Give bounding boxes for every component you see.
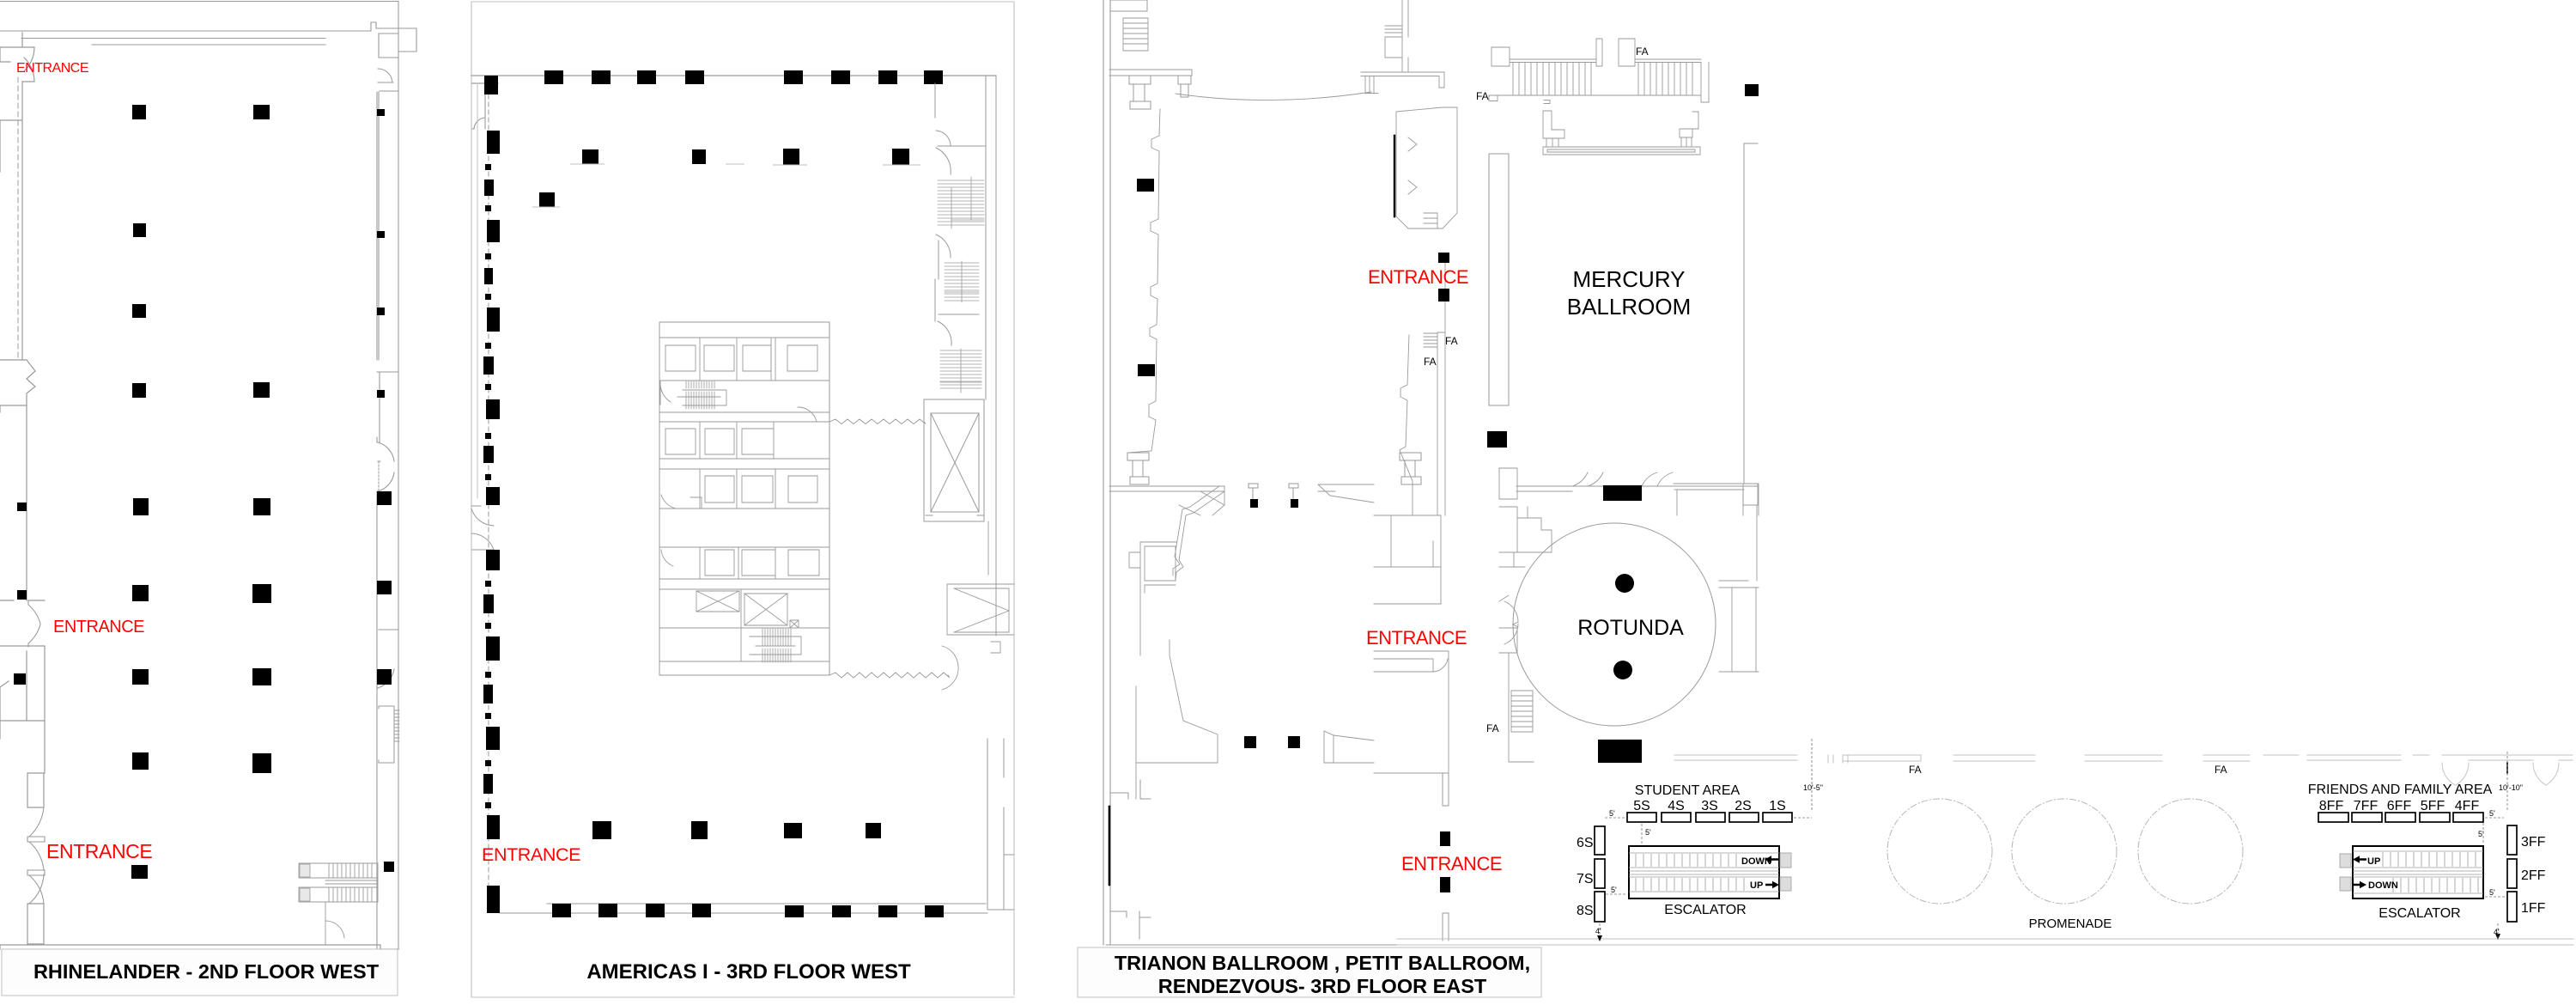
svg-text:5': 5' [1645,828,1651,837]
svg-text:4FF: 4FF [2455,799,2480,813]
svg-text:1S: 1S [1769,799,1786,813]
svg-text:4': 4' [2494,928,2500,936]
svg-text:DOWN: DOWN [1741,856,1771,867]
svg-text:ENTRANCE: ENTRANCE [482,844,580,865]
svg-text:STUDENT AREA: STUDENT AREA [1635,783,1741,798]
svg-text:UP: UP [1750,880,1763,891]
svg-text:8FF: 8FF [2319,799,2344,813]
svg-text:10'-5": 10'-5" [1803,783,1823,792]
svg-text:ENTRANCE: ENTRANCE [1366,627,1467,649]
svg-text:5': 5' [1611,886,1617,894]
svg-text:2FF: 2FF [2521,868,2546,883]
svg-text:5': 5' [2489,888,2495,897]
svg-text:FA: FA [1424,356,1437,368]
svg-text:8S: 8S [1577,904,1594,918]
svg-text:ENTRANCE: ENTRANCE [1401,853,1502,874]
svg-text:1FF: 1FF [2521,901,2546,916]
svg-text:7S: 7S [1577,872,1594,886]
svg-text:FA: FA [2215,764,2227,776]
svg-text:ENTRANCE: ENTRANCE [1368,266,1468,288]
svg-text:TRIANON BALLROOM , PETIT BALLR: TRIANON BALLROOM , PETIT BALLROOM, [1115,952,1530,974]
svg-text:5': 5' [2478,830,2484,838]
svg-text:ENTRANCE: ENTRANCE [46,840,152,862]
svg-text:FA: FA [1636,46,1649,58]
svg-text:3S: 3S [1701,799,1718,813]
svg-text:5FF: 5FF [2421,799,2445,813]
svg-text:ENTRANCE: ENTRANCE [16,61,88,76]
svg-text:ESCALATOR: ESCALATOR [1664,903,1746,917]
svg-text:RHINELANDER - 2ND FLOOR WEST: RHINELANDER - 2ND FLOOR WEST [33,960,380,983]
svg-text:4': 4' [1595,927,1601,935]
svg-text:10'-10": 10'-10" [2499,783,2523,792]
svg-text:7FF: 7FF [2354,799,2379,813]
svg-text:DOWN: DOWN [2368,880,2398,891]
svg-text:RENDEZVOUS- 3RD FLOOR EAST: RENDEZVOUS- 3RD FLOOR EAST [1158,975,1487,997]
svg-text:4S: 4S [1668,799,1685,813]
svg-text:FA: FA [1486,722,1499,734]
svg-text:5S: 5S [1633,799,1650,813]
svg-text:5': 5' [1609,809,1615,818]
svg-text:3FF: 3FF [2521,835,2546,850]
svg-text:6S: 6S [1577,836,1594,850]
svg-text:FRIENDS AND FAMILY AREA: FRIENDS AND FAMILY AREA [2308,783,2493,797]
svg-text:ESCALATOR: ESCALATOR [2379,906,2460,921]
svg-text:ENTRANCE: ENTRANCE [53,618,144,636]
svg-text:FA: FA [1476,90,1489,102]
svg-text:FA: FA [1445,335,1458,347]
svg-text:FA: FA [1909,764,1922,776]
svg-text:ROTUNDA: ROTUNDA [1577,616,1684,640]
svg-text:MERCURY: MERCURY [1573,266,1686,292]
svg-text:5': 5' [2489,809,2495,818]
svg-text:BALLROOM: BALLROOM [1567,294,1692,320]
svg-text:PROMENADE: PROMENADE [2029,917,2112,931]
svg-text:2S: 2S [1735,799,1752,813]
svg-text:UP: UP [2367,856,2380,867]
svg-text:AMERICAS I - 3RD FLOOR WEST: AMERICAS I - 3RD FLOOR WEST [586,960,911,984]
svg-text:6FF: 6FF [2387,799,2412,813]
